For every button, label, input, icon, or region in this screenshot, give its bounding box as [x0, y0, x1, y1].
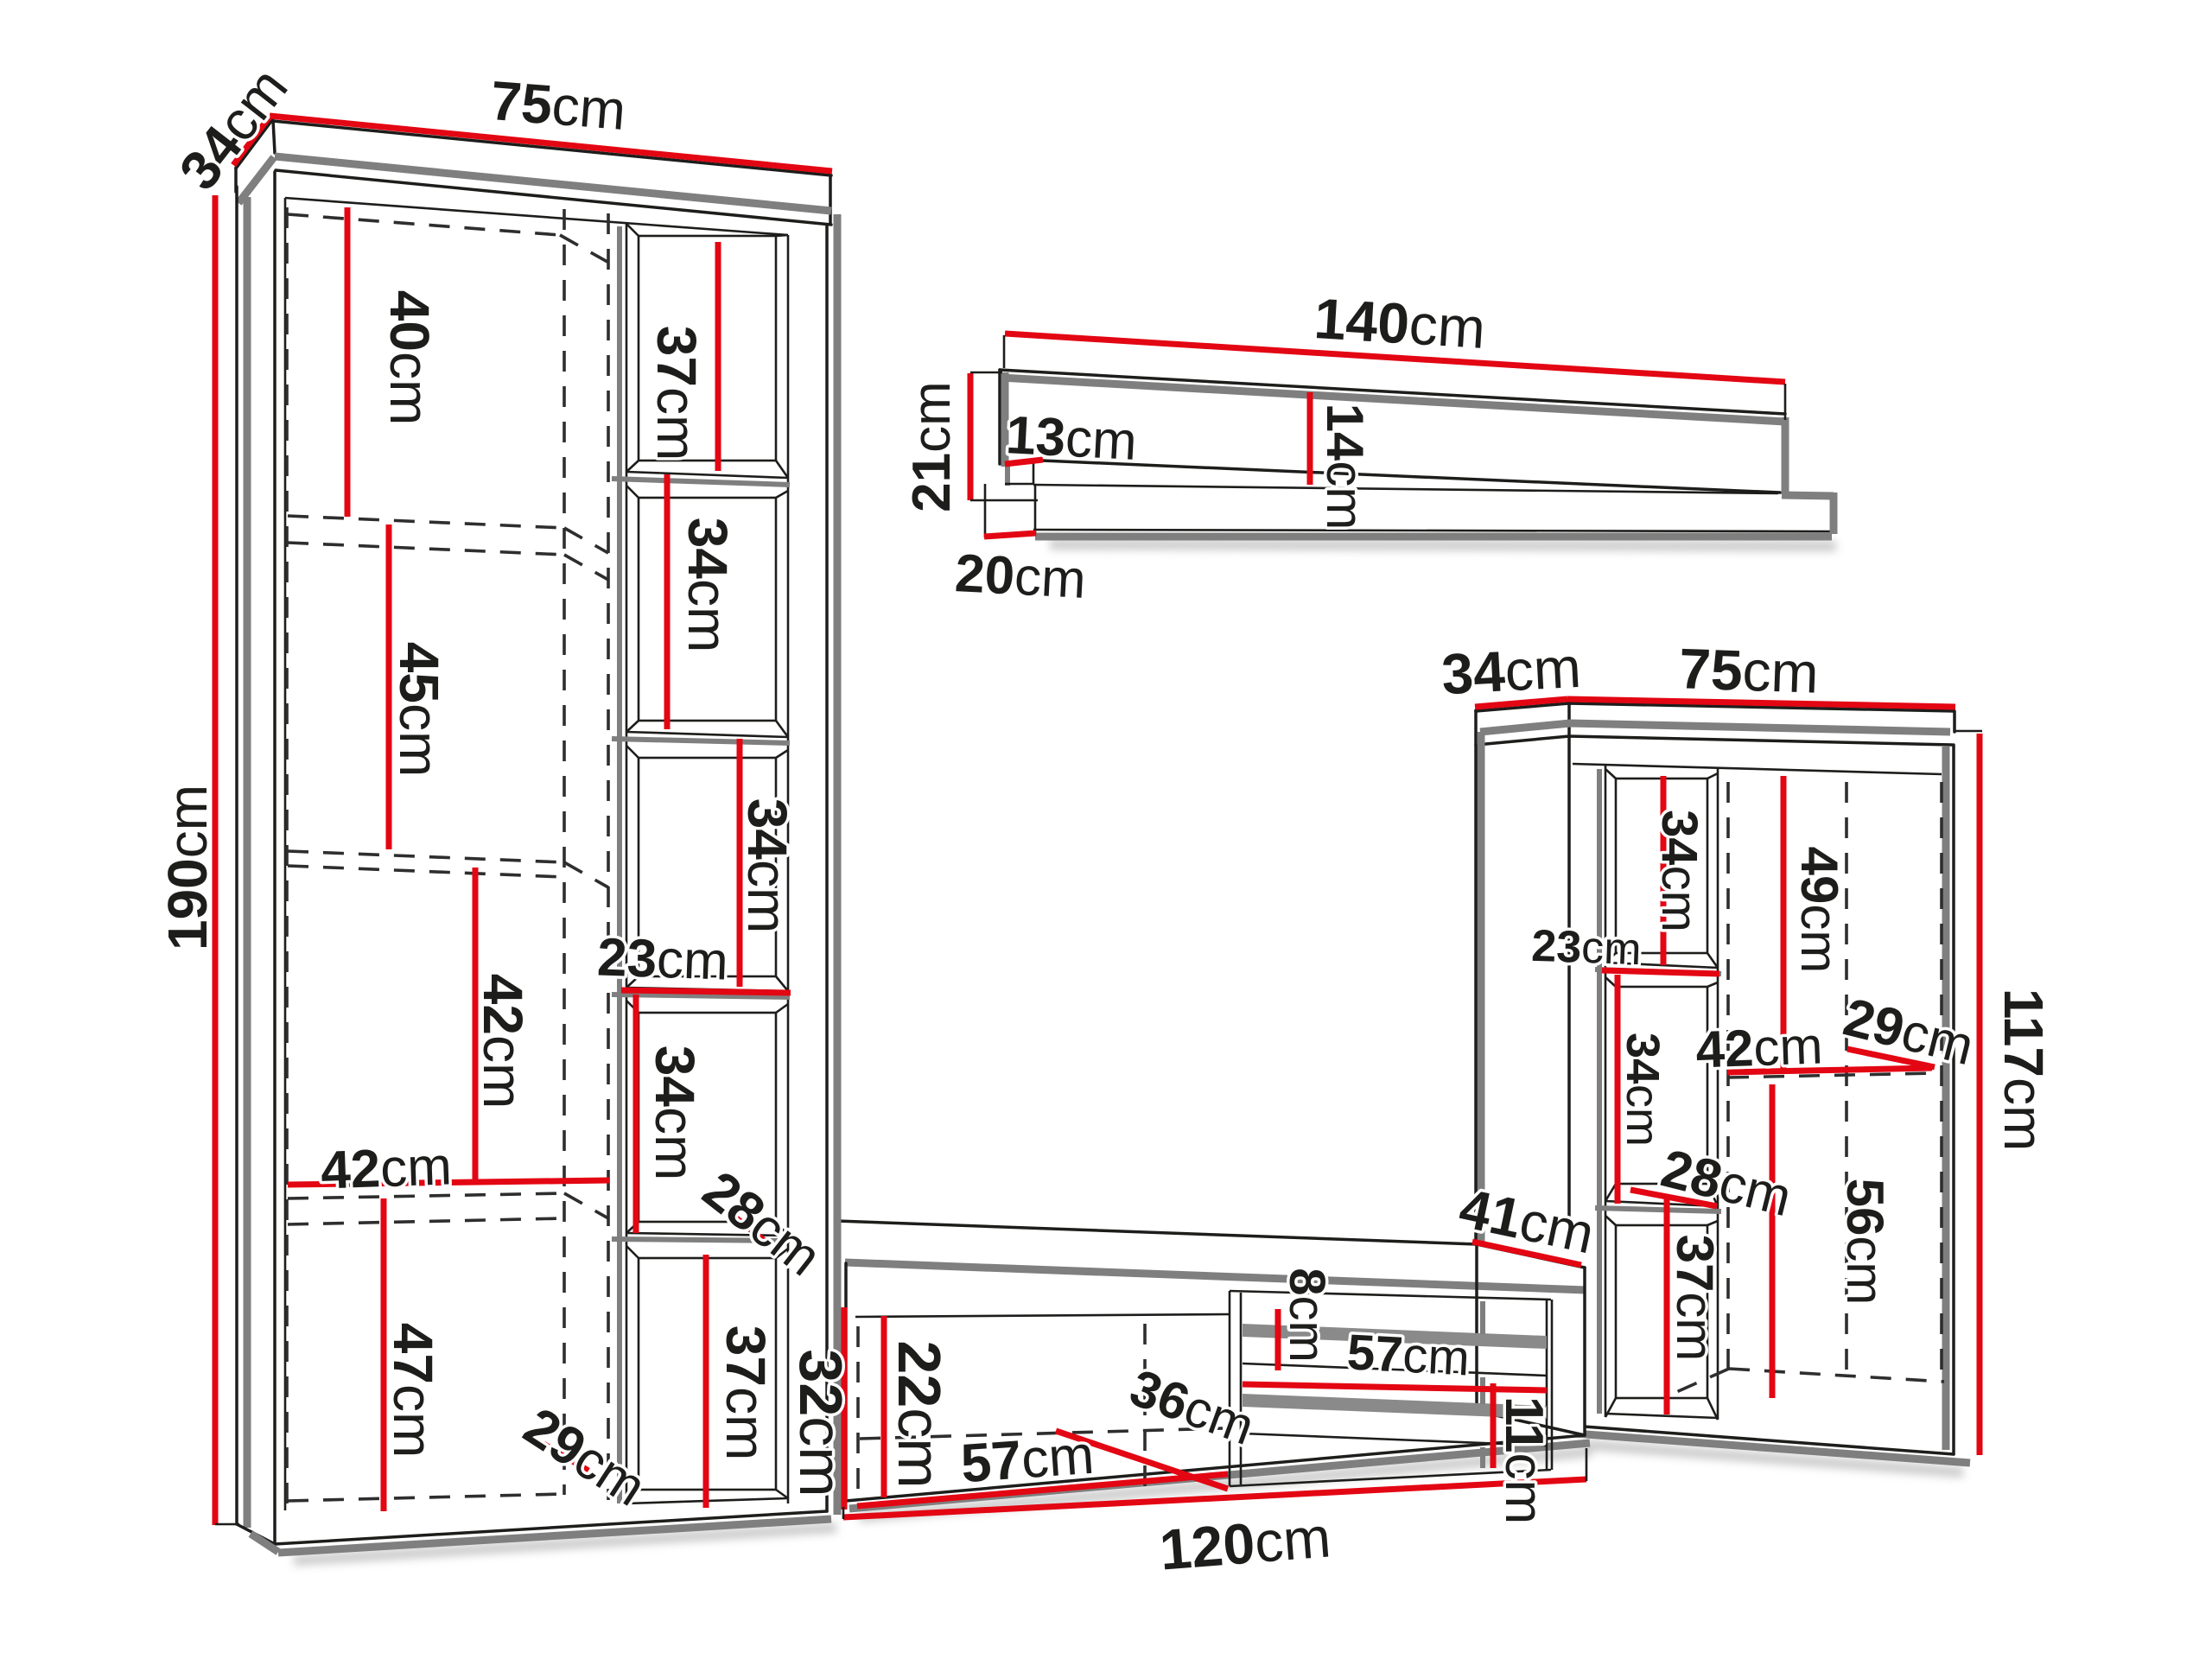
svg-text:34cm: 34cm	[1651, 810, 1707, 932]
svg-text:21cm: 21cm	[902, 381, 962, 512]
svg-text:11cm: 11cm	[1494, 1396, 1554, 1524]
svg-text:140cm: 140cm	[1313, 286, 1487, 360]
svg-text:57cm: 57cm	[1345, 1324, 1471, 1386]
svg-text:40cm: 40cm	[378, 290, 441, 426]
svg-text:34cm: 34cm	[644, 1046, 706, 1181]
svg-text:34cm: 34cm	[677, 518, 739, 653]
svg-text:14cm: 14cm	[1316, 404, 1374, 531]
svg-text:8cm: 8cm	[1279, 1268, 1335, 1363]
svg-text:37cm: 37cm	[1666, 1235, 1724, 1362]
svg-text:22cm: 22cm	[886, 1340, 953, 1488]
svg-text:42cm: 42cm	[320, 1136, 453, 1200]
svg-text:34cm: 34cm	[1617, 1033, 1669, 1147]
svg-text:49cm: 49cm	[1790, 847, 1848, 974]
svg-text:47cm: 47cm	[382, 1323, 444, 1459]
svg-text:56cm: 56cm	[1836, 1179, 1894, 1306]
svg-text:32cm: 32cm	[787, 1349, 855, 1497]
svg-text:37cm: 37cm	[715, 1325, 777, 1461]
svg-text:34cm: 34cm	[1440, 635, 1582, 706]
svg-text:75cm: 75cm	[1678, 636, 1820, 705]
svg-text:34cm: 34cm	[736, 798, 798, 934]
svg-text:23cm: 23cm	[596, 927, 729, 991]
svg-text:45cm: 45cm	[388, 642, 450, 778]
svg-text:57cm: 57cm	[959, 1425, 1096, 1495]
svg-text:75cm: 75cm	[488, 69, 628, 142]
svg-text:23cm: 23cm	[1530, 921, 1642, 975]
svg-text:42cm: 42cm	[1695, 1016, 1824, 1078]
svg-text:120cm: 120cm	[1157, 1504, 1332, 1581]
svg-text:13cm: 13cm	[1004, 405, 1138, 472]
svg-text:20cm: 20cm	[953, 543, 1087, 610]
svg-text:37cm: 37cm	[645, 326, 708, 461]
svg-text:42cm: 42cm	[472, 974, 534, 1109]
svg-text:190cm: 190cm	[156, 785, 219, 950]
svg-text:117cm: 117cm	[1993, 988, 2055, 1152]
